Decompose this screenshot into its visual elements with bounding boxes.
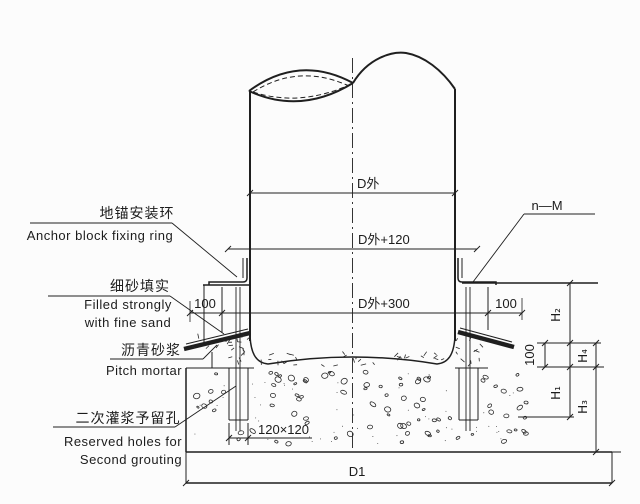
dim-pipe-od-plus-300: D外+300	[358, 296, 410, 311]
dim-hole-size: 120×120	[258, 422, 309, 437]
fixing-ring-bracket-left	[209, 258, 247, 285]
dim-h4: H₄	[576, 349, 590, 363]
anchor-block-installation-drawing: 地锚安装环 Anchor block fixing ring 细砂填实 Fill…	[0, 0, 640, 504]
installation-drawing-page: 地锚安装环 Anchor block fixing ring 细砂填实 Fill…	[0, 0, 640, 504]
diameter-dimension-lines	[187, 190, 525, 322]
pipe	[249, 53, 455, 364]
grouting-label-en2: Second grouting	[80, 452, 182, 467]
dim-mortar-step: 100	[522, 344, 537, 366]
anchor-bolt-right	[466, 287, 470, 431]
dim-h2: H₂	[549, 308, 563, 322]
fine-sand-label-zh: 细砂填实	[110, 278, 170, 294]
dim-pipe-od-plus-120: D外+120	[358, 232, 410, 247]
pipe-break-symbol-icon	[249, 70, 353, 101]
grouting-label-en1: Reserved holes for	[64, 434, 182, 449]
grouting-label-zh: 二次灌浆予留孔	[76, 410, 181, 426]
dim-base-width: D1	[349, 464, 366, 479]
left-block-structure	[184, 258, 254, 452]
fine-sand-label-en1: Filled strongly	[84, 297, 172, 312]
anchor-ring-label-en: Anchor block fixing ring	[27, 228, 173, 243]
pipe-top-arc	[353, 53, 455, 89]
reserved-hole-left	[229, 368, 248, 420]
text-labels: 地锚安装环 Anchor block fixing ring 细砂填实 Fill…	[27, 176, 590, 479]
bolt-spec-label: n—M	[531, 198, 562, 213]
anchor-ring-label-zh: 地锚安装环	[100, 205, 175, 221]
height-dimension-chains	[518, 280, 621, 455]
fine-sand-label-en2: with fine sand	[84, 315, 172, 330]
dim-gap-right: 100	[495, 296, 517, 311]
reserved-hole-right	[459, 368, 478, 420]
fixing-ring-bracket-right	[458, 258, 496, 285]
dim-pipe-od: D外	[357, 176, 379, 191]
pitch-mortar-label-zh: 沥青砂浆	[121, 342, 181, 358]
dim-gap-left: 100	[194, 296, 216, 311]
dim-h1: H₁	[549, 386, 563, 400]
pitch-mortar-label-en: Pitch mortar	[106, 363, 182, 378]
dim-h3: H₃	[576, 400, 590, 414]
block-bottom	[183, 452, 615, 486]
